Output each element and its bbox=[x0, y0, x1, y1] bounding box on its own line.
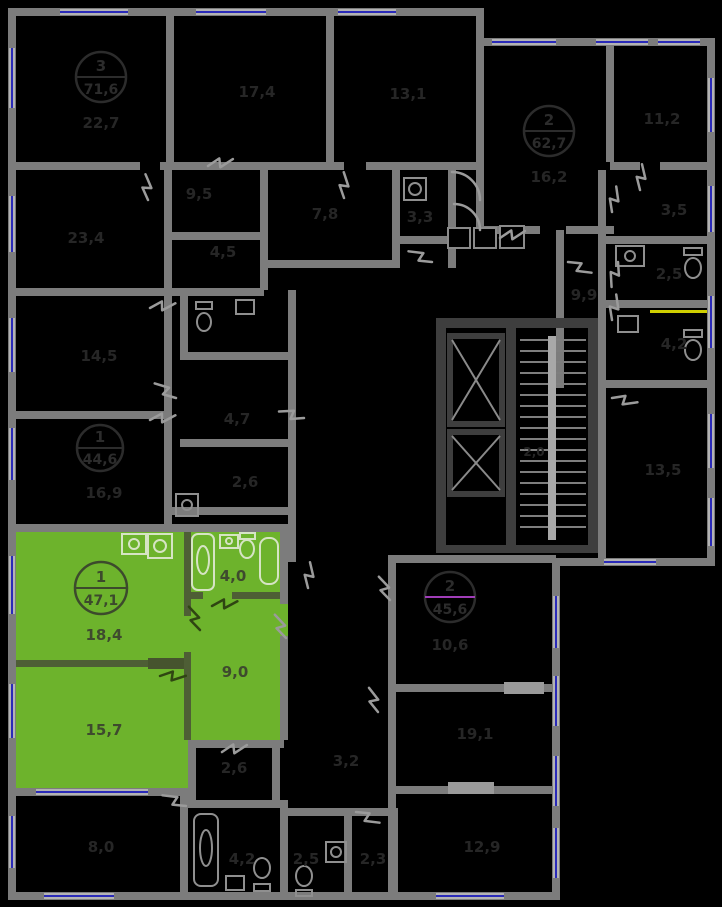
apartment-area: 62,7 bbox=[532, 136, 567, 152]
room-label: 16,9 bbox=[85, 484, 122, 502]
sink-icon bbox=[618, 316, 638, 332]
apartment-badge-top-left[interactable]: 3 71,6 bbox=[76, 52, 126, 102]
room-label: 22,7 bbox=[82, 114, 119, 132]
room-label: 9,5 bbox=[186, 185, 213, 203]
room-label: 7,8 bbox=[312, 205, 339, 223]
door-icon bbox=[332, 172, 356, 198]
apartment-badge-bottom[interactable]: 2 45,6 bbox=[425, 572, 475, 622]
room-label: 13,1 bbox=[389, 85, 426, 103]
toilet-icon bbox=[296, 866, 312, 896]
elevator-icon bbox=[450, 336, 502, 424]
room-label-bedroom: 15,7 bbox=[85, 721, 122, 739]
room-label: 2,3 bbox=[360, 850, 387, 868]
building-core bbox=[436, 226, 598, 553]
apartment-area: 71,6 bbox=[84, 82, 119, 98]
partition-hall-bottom bbox=[184, 652, 191, 740]
door-icon bbox=[135, 174, 158, 200]
door-icon bbox=[612, 387, 637, 412]
room-label: 2,0 bbox=[523, 445, 544, 459]
selected-apartment-fill-right[interactable] bbox=[188, 532, 280, 740]
room-label: 23,4 bbox=[67, 229, 104, 247]
washer-icon bbox=[404, 178, 426, 200]
door-icon bbox=[568, 255, 591, 281]
selected-apartment-area: 47,1 bbox=[84, 593, 119, 609]
double-door-arc-icon bbox=[452, 172, 480, 230]
sink-icon bbox=[616, 246, 644, 266]
apartment-number: 2 bbox=[445, 577, 455, 595]
floorplan-svg: 1 47,1 18,4 15,7 9,0 4,0 bbox=[0, 0, 722, 907]
partition-hall-top bbox=[184, 596, 191, 616]
selected-apartment-region[interactable]: 1 47,1 18,4 15,7 9,0 4,0 bbox=[16, 532, 288, 788]
apartment-number: 3 bbox=[96, 57, 106, 75]
bathtub-icon bbox=[194, 814, 218, 886]
room-label: 3,2 bbox=[333, 752, 360, 770]
room-label: 10,6 bbox=[431, 636, 468, 654]
room-label: 14,5 bbox=[80, 347, 117, 365]
apartment-area: 45,6 bbox=[433, 602, 468, 618]
duct-line bbox=[650, 310, 707, 313]
selected-apartment-badge[interactable]: 1 47,1 bbox=[75, 562, 127, 614]
room-label: 2,6 bbox=[232, 473, 259, 491]
room-label: 2,6 bbox=[221, 759, 248, 777]
sink-icon bbox=[236, 300, 254, 314]
room-label: 8,0 bbox=[88, 838, 115, 856]
elevator-icon bbox=[450, 432, 502, 494]
floorplan-stage: 1 47,1 18,4 15,7 9,0 4,0 bbox=[0, 0, 722, 907]
door-icon bbox=[409, 244, 432, 270]
room-label: 3,5 bbox=[661, 201, 688, 219]
partition-bath-bottom-b bbox=[232, 592, 280, 599]
partition-chunk bbox=[148, 658, 188, 669]
room-label: 4,7 bbox=[224, 410, 251, 428]
room-label-bathroom: 4,0 bbox=[220, 567, 247, 585]
selected-apartment-number: 1 bbox=[96, 568, 106, 586]
partition-bath-left bbox=[184, 532, 191, 596]
toilet-icon bbox=[254, 858, 270, 891]
apartment-badge-left[interactable]: 1 44,6 bbox=[77, 425, 123, 471]
apartment-badge-top-right[interactable]: 2 62,7 bbox=[524, 106, 574, 156]
room-label-hall: 9,0 bbox=[222, 663, 249, 681]
apartment-area: 44,6 bbox=[83, 452, 118, 468]
apartment-number: 2 bbox=[544, 111, 554, 129]
room-label-living: 18,4 bbox=[85, 626, 122, 644]
room-label: 17,4 bbox=[238, 83, 275, 101]
door-icon bbox=[297, 562, 322, 588]
room-label: 4,2 bbox=[229, 850, 256, 868]
room-label: 13,5 bbox=[644, 461, 681, 479]
apartment-number: 1 bbox=[95, 428, 105, 446]
partition-bath-bottom-a bbox=[191, 592, 203, 599]
sink-icon bbox=[226, 876, 244, 890]
room-label: 4,5 bbox=[210, 243, 237, 261]
toilet-icon bbox=[684, 248, 702, 278]
room-label: 11,2 bbox=[643, 110, 680, 128]
room-label: 9,9 bbox=[571, 286, 598, 304]
room-label: 2,5 bbox=[656, 265, 683, 283]
room-label: 12,9 bbox=[463, 838, 500, 856]
washer-icon bbox=[326, 842, 346, 862]
room-label: 3,3 bbox=[407, 208, 434, 226]
door-icon bbox=[364, 688, 384, 712]
stairs-icon bbox=[520, 336, 586, 540]
room-label: 2,5 bbox=[293, 850, 320, 868]
toilet-icon bbox=[196, 302, 212, 331]
room-label: 16,2 bbox=[530, 168, 567, 186]
room-label: 19,1 bbox=[456, 725, 493, 743]
room-label: 4,2 bbox=[661, 335, 688, 353]
